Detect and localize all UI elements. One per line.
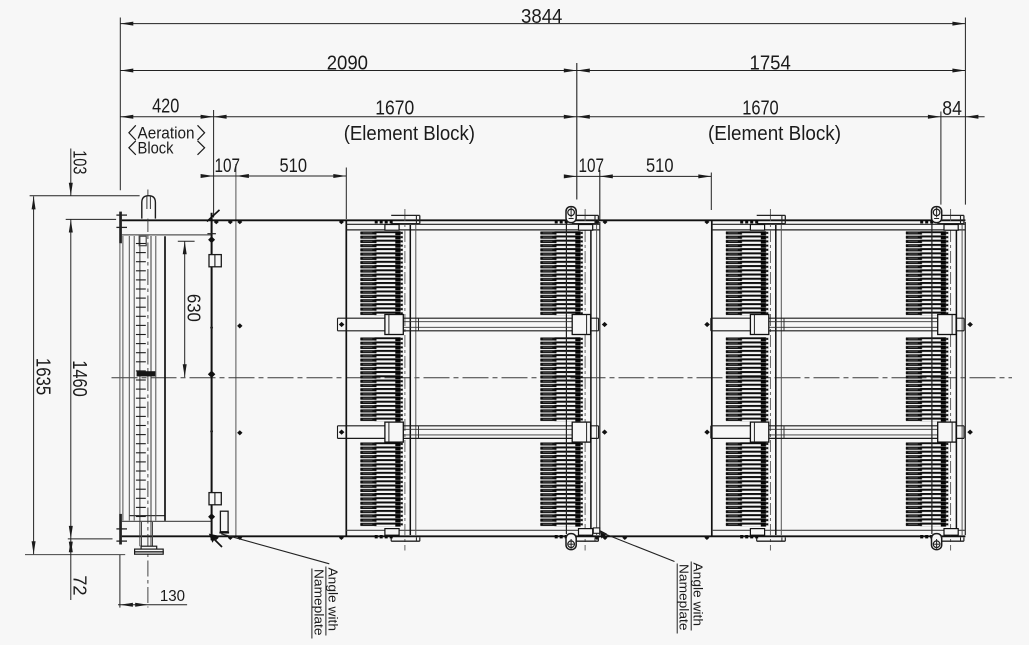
- svg-text:510: 510: [646, 155, 674, 177]
- svg-text:(Element Block): (Element Block): [708, 123, 841, 145]
- svg-text:Nameplate: Nameplate: [311, 569, 326, 636]
- svg-text:84: 84: [942, 97, 962, 120]
- svg-text:Angle with: Angle with: [691, 563, 706, 627]
- svg-text:1670: 1670: [742, 96, 779, 119]
- svg-text:2090: 2090: [327, 51, 368, 74]
- svg-text:420: 420: [152, 94, 179, 117]
- svg-text:510: 510: [280, 155, 308, 177]
- svg-text:630: 630: [183, 294, 203, 322]
- svg-text:1460: 1460: [68, 360, 90, 397]
- svg-text:(Element Block): (Element Block): [344, 123, 475, 145]
- svg-text:Angle with: Angle with: [325, 568, 340, 632]
- svg-text:130: 130: [160, 588, 185, 605]
- svg-text:107: 107: [215, 155, 241, 177]
- svg-text:1670: 1670: [375, 96, 414, 119]
- svg-text:72: 72: [70, 575, 90, 595]
- svg-text:1754: 1754: [750, 51, 791, 74]
- svg-text:103: 103: [69, 150, 89, 174]
- svg-text:Nameplate: Nameplate: [677, 564, 692, 631]
- svg-text:3844: 3844: [521, 5, 562, 28]
- svg-text:107: 107: [579, 155, 605, 177]
- svg-text:1635: 1635: [31, 358, 53, 395]
- svg-text:Block: Block: [138, 138, 174, 157]
